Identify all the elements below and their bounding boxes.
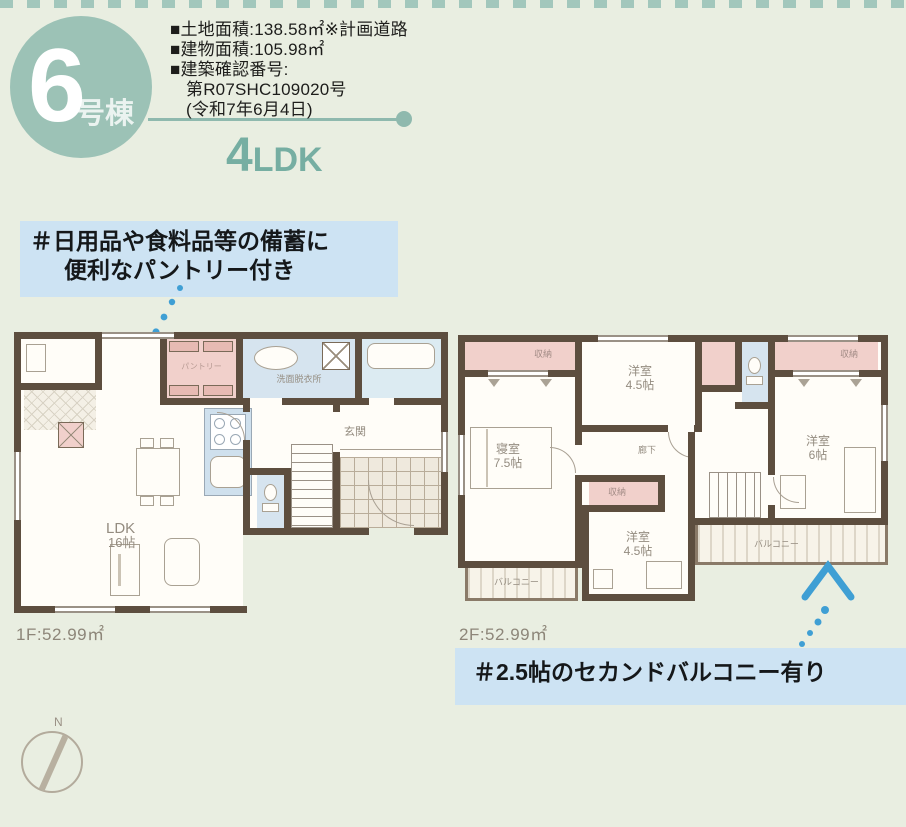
window <box>793 370 859 377</box>
unit-suffix: 号棟 <box>76 90 134 132</box>
pantry-shelf <box>169 385 199 396</box>
dining-chair <box>140 438 154 448</box>
floor1-area-label: 1F:52.99㎡ <box>16 620 105 645</box>
west-room-b-label: 洋室6帖 <box>796 435 840 463</box>
spec-building-area: ■建物面積:105.98㎡ <box>170 40 408 60</box>
window <box>788 335 858 342</box>
washbasin <box>254 346 298 370</box>
window <box>598 335 668 342</box>
window <box>55 606 115 613</box>
window <box>441 432 448 472</box>
floor-2f-left-lower <box>465 518 582 561</box>
floor-plan-1f: パントリー 洗面脱衣所 LDK 16帖 <box>14 332 448 619</box>
bedroom-label: 寝室7.5帖 <box>478 443 538 471</box>
window <box>150 606 210 613</box>
closet-right-label: 収納 <box>840 349 858 359</box>
washstand <box>593 569 613 589</box>
pantry-callout-line1: ＃日用品や食料品等の備蓄に <box>30 227 398 256</box>
spec-confirmation-label: ■建築確認番号: <box>170 60 408 80</box>
window <box>458 435 465 495</box>
unit-badge: 6 号棟 <box>10 16 152 158</box>
balcony-second-label: バルコニー <box>754 539 799 549</box>
curtain-mark <box>850 379 862 387</box>
toilet-tank <box>746 376 763 385</box>
washroom-label: 洗面脱衣所 <box>243 374 355 384</box>
pantry-shelf <box>203 341 233 352</box>
dining-chair <box>160 496 174 506</box>
balcony-callout-text: ＃2.5帖のセカンドバルコニー有り <box>473 658 906 687</box>
toilet-bowl <box>748 357 761 374</box>
ldk-size-label: 16帖 <box>108 536 135 551</box>
layout-suffix: LDK <box>253 141 323 179</box>
pantry-label: パントリー <box>167 362 236 371</box>
spec-confirmation-number: 第R07SHC109020号 <box>170 80 408 100</box>
spec-confirmation-date: (令和7年6月4日) <box>170 100 408 120</box>
pantry-callout-line2: 便利なパントリー付き <box>30 256 398 285</box>
tv-board <box>110 544 140 596</box>
window <box>488 370 548 377</box>
toilet-room-1f <box>257 475 284 528</box>
layout-type: 4LDK <box>226 128 323 183</box>
balcony-arrow <box>775 552 885 657</box>
storage-cabinet <box>26 344 46 372</box>
stairs-2f <box>709 472 761 518</box>
dashed-top-border <box>0 0 906 8</box>
bed-west-b <box>844 447 876 513</box>
curtain-mark <box>798 379 810 387</box>
sofa <box>164 538 200 586</box>
bathtub <box>367 343 435 369</box>
closet-hall <box>702 342 735 385</box>
entrance-step <box>340 449 441 454</box>
closet-left <box>465 342 575 370</box>
dining-table <box>136 448 180 496</box>
curtain-mark <box>488 379 500 387</box>
north-icon: N <box>54 715 63 729</box>
hallway-label: 廊下 <box>638 445 656 455</box>
closet-middle-label: 収納 <box>608 487 626 497</box>
tv <box>118 554 121 586</box>
refrigerator-space <box>58 422 84 448</box>
floor2-area-label: 2F:52.99㎡ <box>459 620 548 645</box>
pantry-shelf <box>203 385 233 396</box>
window <box>14 452 21 520</box>
unit-number: 6 <box>28 16 86 156</box>
stairs-1f <box>291 444 333 528</box>
kitchen-sink <box>210 456 246 488</box>
entrance-label: 玄関 <box>344 426 366 439</box>
closet-right <box>775 342 878 370</box>
flyer-canvas: 6 号棟 ■土地面積:138.58㎡※計画道路 ■建物面積:105.98㎡ ■建… <box>0 0 906 827</box>
toilet-bowl <box>264 484 277 501</box>
pantry-shelf <box>169 341 199 352</box>
curtain-mark <box>540 379 552 387</box>
washing-machine <box>322 342 350 370</box>
compass: N <box>8 698 98 810</box>
dining-chair <box>160 438 174 448</box>
west-room-a-label: 洋室4.5帖 <box>608 365 672 393</box>
bed-west-c <box>646 561 682 589</box>
window <box>102 332 174 339</box>
layout-number: 4 <box>226 129 253 182</box>
dining-chair <box>140 496 154 506</box>
west-room-c-label: 洋室4.5帖 <box>606 531 670 559</box>
balcony-left-label: バルコニー <box>494 577 539 587</box>
toilet-tank <box>262 503 279 512</box>
spec-land-area: ■土地面積:138.58㎡※計画道路 <box>170 20 408 40</box>
property-specs: ■土地面積:138.58㎡※計画道路 ■建物面積:105.98㎡ ■建築確認番号… <box>170 20 408 120</box>
window <box>881 405 888 461</box>
closet-left-label: 収納 <box>534 349 552 359</box>
